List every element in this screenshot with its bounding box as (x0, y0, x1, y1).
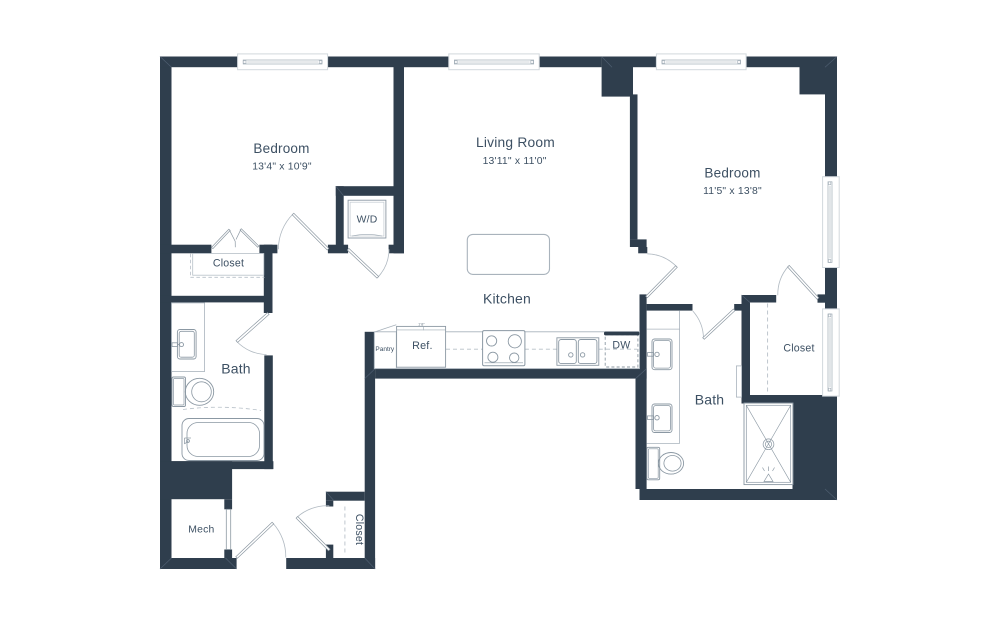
svg-text:DW: DW (612, 339, 630, 351)
svg-text:Bath: Bath (695, 391, 725, 407)
svg-text:13'4" x 10'9": 13'4" x 10'9" (252, 162, 312, 173)
svg-text:11'5" x 13'8": 11'5" x 13'8" (703, 186, 762, 197)
svg-text:Living Room: Living Room (476, 135, 555, 150)
svg-text:Bedroom: Bedroom (704, 166, 760, 181)
svg-text:Ref.: Ref. (412, 340, 433, 352)
svg-text:Closet: Closet (213, 257, 244, 269)
svg-text:13'11" x 11'0": 13'11" x 11'0" (483, 156, 547, 167)
svg-text:Bath: Bath (221, 360, 251, 376)
svg-text:Kitchen: Kitchen (483, 291, 531, 307)
svg-text:W/D: W/D (357, 214, 378, 225)
svg-text:Mech: Mech (188, 524, 214, 535)
svg-text:Closet: Closet (353, 514, 365, 545)
svg-text:Bedroom: Bedroom (253, 141, 309, 156)
svg-text:Pantry: Pantry (375, 346, 395, 353)
svg-text:1'8": 1'8" (418, 322, 425, 327)
svg-text:Closet: Closet (783, 342, 814, 354)
